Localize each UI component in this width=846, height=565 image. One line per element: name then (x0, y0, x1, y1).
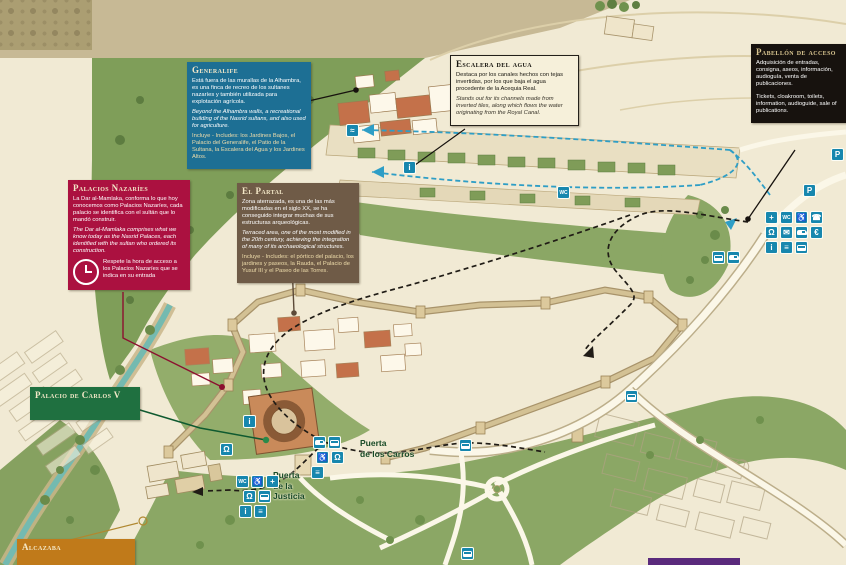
bus-stop-icon (461, 547, 474, 560)
pabellon-info-box: Pabellón de acceso Adquisición de entrad… (751, 44, 846, 123)
bus-icon (712, 251, 725, 264)
accessibility-icon: ♿ (251, 475, 264, 488)
first-aid-icon: + (765, 211, 778, 224)
toilets-icon: WC (236, 475, 249, 488)
generalife-title: Generalife (192, 66, 306, 75)
escalera-info-box: Escalera del agua Destaca por los canale… (450, 55, 579, 126)
nazaries-info-box: Palacios Nazaríes La Dar al-Mamlaka, con… (68, 180, 190, 290)
information-icon: i (239, 505, 252, 518)
nazaries-text-es: La Dar al-Mamlaka, conforma lo que hoy c… (73, 196, 185, 224)
pabellon-title: Pabellón de acceso (756, 48, 845, 57)
generalife-text-en: Beyond the Alhambra walls, a recreationa… (192, 109, 306, 130)
audioguide-icon: Ω (331, 451, 344, 464)
carlos-v-label-box: Palacio de Carlos V (30, 387, 140, 420)
audioguide-icon: Ω (765, 226, 778, 239)
partal-text-en: Terraced area, one of the most modified … (242, 230, 354, 251)
information-icon: i (243, 415, 256, 428)
clock-icon (73, 259, 99, 285)
first-aid-icon: + (266, 475, 279, 488)
partal-text-es: Zona aterrazada, es una de las más modif… (242, 199, 354, 227)
nazaries-title: Palacios Nazaríes (73, 184, 185, 193)
generalife-info-box: Generalife Está fuera de las murallas de… (187, 62, 311, 169)
publications-icon: ≡ (780, 241, 793, 254)
car-icon (727, 251, 740, 264)
water-channel-icon: ≈ (346, 124, 359, 137)
publications-icon: ≡ (311, 466, 324, 479)
alcazaba-title: Alcazaba (22, 543, 130, 552)
bus-icon (795, 241, 808, 254)
bus-icon (258, 490, 271, 503)
parking-icon: P (803, 184, 816, 197)
accessibility-icon: ♿ (795, 211, 808, 224)
toilets-icon: WC (557, 186, 570, 199)
audioguide-icon: Ω (220, 443, 233, 456)
alcazaba-label-box: Alcazaba (17, 539, 135, 565)
damask-corner-ornament (0, 0, 92, 50)
information-icon: i (403, 161, 416, 174)
puerta-de-los-carros-label: Puerta de los Carros (360, 438, 450, 459)
generalife-includes: Incluye - Includes: los Jardines Bajos, … (192, 133, 306, 161)
bus-icon (328, 436, 341, 449)
nazaries-access-note: Respete la hora de acceso a los Palacios… (103, 259, 185, 280)
ticket-sales-icon: € (810, 226, 823, 239)
bus-stop-icon (459, 439, 472, 452)
partal-title: El Partal (242, 187, 354, 196)
mail-icon: ✉ (780, 226, 793, 239)
audioguide-icon: Ω (243, 490, 256, 503)
escalera-text-es: Destaca por los canales hechos con tejas… (456, 72, 573, 93)
escalera-text-en: Stands out for its channels made from in… (456, 96, 573, 117)
bottom-edge-label-fragment (648, 558, 740, 565)
accessibility-icon: ♿ (316, 451, 329, 464)
bus-stop-icon (625, 390, 638, 403)
partal-includes: Incluye - Includes: el pórtico del palac… (242, 254, 354, 275)
phone-icon: ☎ (810, 211, 823, 224)
puerta-de-la-justicia-label: Puerta de la Justicia (273, 470, 333, 502)
nazaries-text-en: The Dar al-Mamlaka comprises what we kno… (73, 227, 185, 255)
publications-icon: ≡ (254, 505, 267, 518)
toilets-icon: WC (780, 211, 793, 224)
alhambra-map: Generalife Está fuera de las murallas de… (0, 0, 846, 565)
pabellon-text-en: Tickets, cloakroom, toilets, information… (756, 94, 845, 115)
information-icon: i (765, 241, 778, 254)
carlos-v-title: Palacio de Carlos V (35, 391, 135, 400)
pabellon-text-es: Adquisición de entradas, consigna, aseos… (756, 60, 845, 88)
parking-icon: P (831, 148, 844, 161)
car-icon (313, 436, 326, 449)
generalife-text-es: Está fuera de las murallas de la Alhambr… (192, 78, 306, 106)
partal-info-box: El Partal Zona aterrazada, es una de las… (237, 183, 359, 283)
car-icon (795, 226, 808, 239)
escalera-title: Escalera del agua (456, 60, 573, 69)
